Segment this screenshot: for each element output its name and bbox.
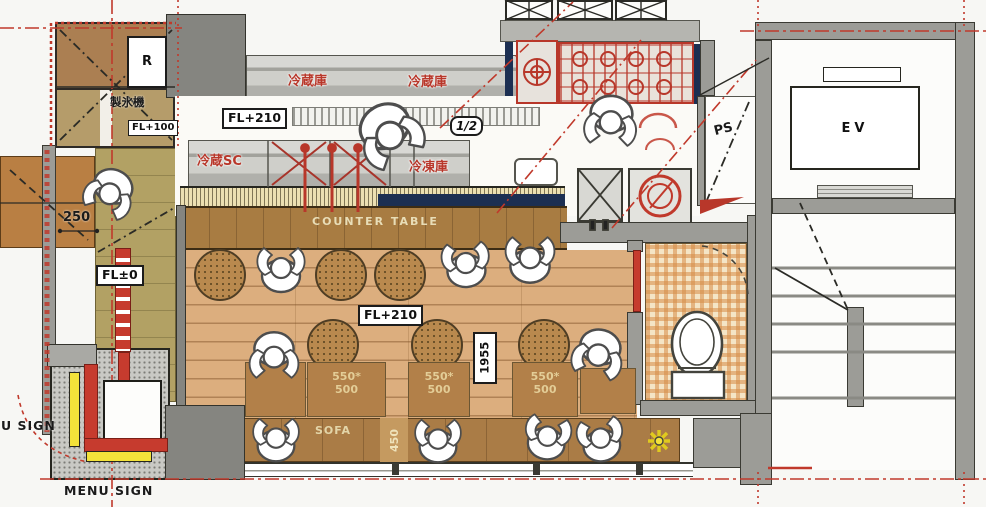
half-label: 1/2 <box>450 116 483 136</box>
ev-door <box>817 185 913 198</box>
rice-cooker-unit <box>628 168 692 224</box>
table-size-label: 550* 500 <box>409 371 469 396</box>
dining-table-labeled: 550* 500 <box>512 362 578 417</box>
dining-table <box>245 362 306 417</box>
prep-sink <box>577 168 623 222</box>
exhaust-unit-2 <box>557 0 613 20</box>
hand-sink <box>514 158 558 186</box>
toilet-door-frame <box>633 250 641 312</box>
counter-navy-strip <box>378 194 565 206</box>
showcase-label: 冷蔵SC <box>197 150 242 169</box>
ps-room-floor <box>705 96 757 204</box>
menu-sign-bar-horizontal <box>86 451 152 462</box>
window-mullion <box>636 463 643 475</box>
stair-newel-wall <box>847 307 864 407</box>
planter-box <box>103 380 162 440</box>
gas-range <box>558 42 694 104</box>
table-size-label: 550* 500 <box>308 371 385 396</box>
stair-bottom-left-wall <box>740 413 772 485</box>
fl0-label: FL±0 <box>96 265 144 286</box>
fridge-left-label: 冷蔵庫 <box>288 70 327 89</box>
sign-wall-horizontal <box>84 438 168 452</box>
window-mullion <box>392 463 399 475</box>
counter-table <box>183 206 567 250</box>
stool <box>315 249 367 301</box>
right-block-top-wall <box>755 22 975 40</box>
dim-1955-box: 1955 <box>473 332 497 384</box>
fridge-right-label: 冷蔵庫 <box>408 71 447 90</box>
fl100-label: FL+100 <box>128 120 178 136</box>
entry-door-leaf <box>115 248 131 352</box>
corridor-wall <box>700 40 715 96</box>
sofa-label: SOFA <box>315 424 351 437</box>
rack-box: R <box>127 36 167 88</box>
dining-table-labeled: 550* 500 <box>408 362 470 417</box>
exhaust-unit-1 <box>505 0 553 20</box>
sofa-bench <box>240 418 680 462</box>
sign-label-bottom: MENU SIGN <box>64 483 153 498</box>
dim-1955: 1955 <box>477 342 493 374</box>
ev-counterweight <box>823 67 901 82</box>
ev-label: EV <box>842 121 869 136</box>
pass-shelf <box>292 107 540 126</box>
counter-table-label: COUNTER TABLE <box>312 215 439 228</box>
kitchen-fl-label: FL+210 <box>222 108 287 129</box>
window-mullion <box>533 463 540 475</box>
dining-left-wall <box>176 205 186 418</box>
window-band <box>245 462 693 477</box>
exhaust-unit-3 <box>615 0 667 20</box>
ev-stair-divider-wall <box>772 198 955 214</box>
ev-cab: EV <box>790 86 920 170</box>
fridge-tall-unit <box>166 14 246 98</box>
side-table <box>580 368 636 414</box>
dining-fl-label: FL+210 <box>358 305 423 326</box>
ice-maker-label: 製氷機 <box>110 94 145 110</box>
stool <box>194 249 246 301</box>
service-block <box>165 405 245 480</box>
range-blue-panel-left <box>505 42 513 96</box>
toilet-floor <box>645 243 747 403</box>
freezer-label: 冷凍庫 <box>409 156 448 175</box>
table-size-label: 550* 500 <box>513 371 577 396</box>
menu-sign-bar-vertical <box>69 372 80 447</box>
stool <box>374 249 426 301</box>
sign-label-left: U SIGN <box>1 418 56 433</box>
dining-table-labeled: 550* 500 <box>307 362 386 417</box>
floor-plan: R 製氷機 FL+100 FL±0 250 U SIGN MENU SIGN 冷… <box>0 0 986 507</box>
range-burner-unit-left <box>516 40 558 104</box>
equipment-top-strip <box>500 20 700 42</box>
entry-dim-250: 250 <box>63 210 90 225</box>
right-outer-wall <box>955 22 975 480</box>
rack-label: R <box>142 53 152 71</box>
wash-top-wall <box>560 222 759 243</box>
ps-left-wall <box>697 96 705 206</box>
sofa-dim-450: 450 <box>378 424 410 456</box>
